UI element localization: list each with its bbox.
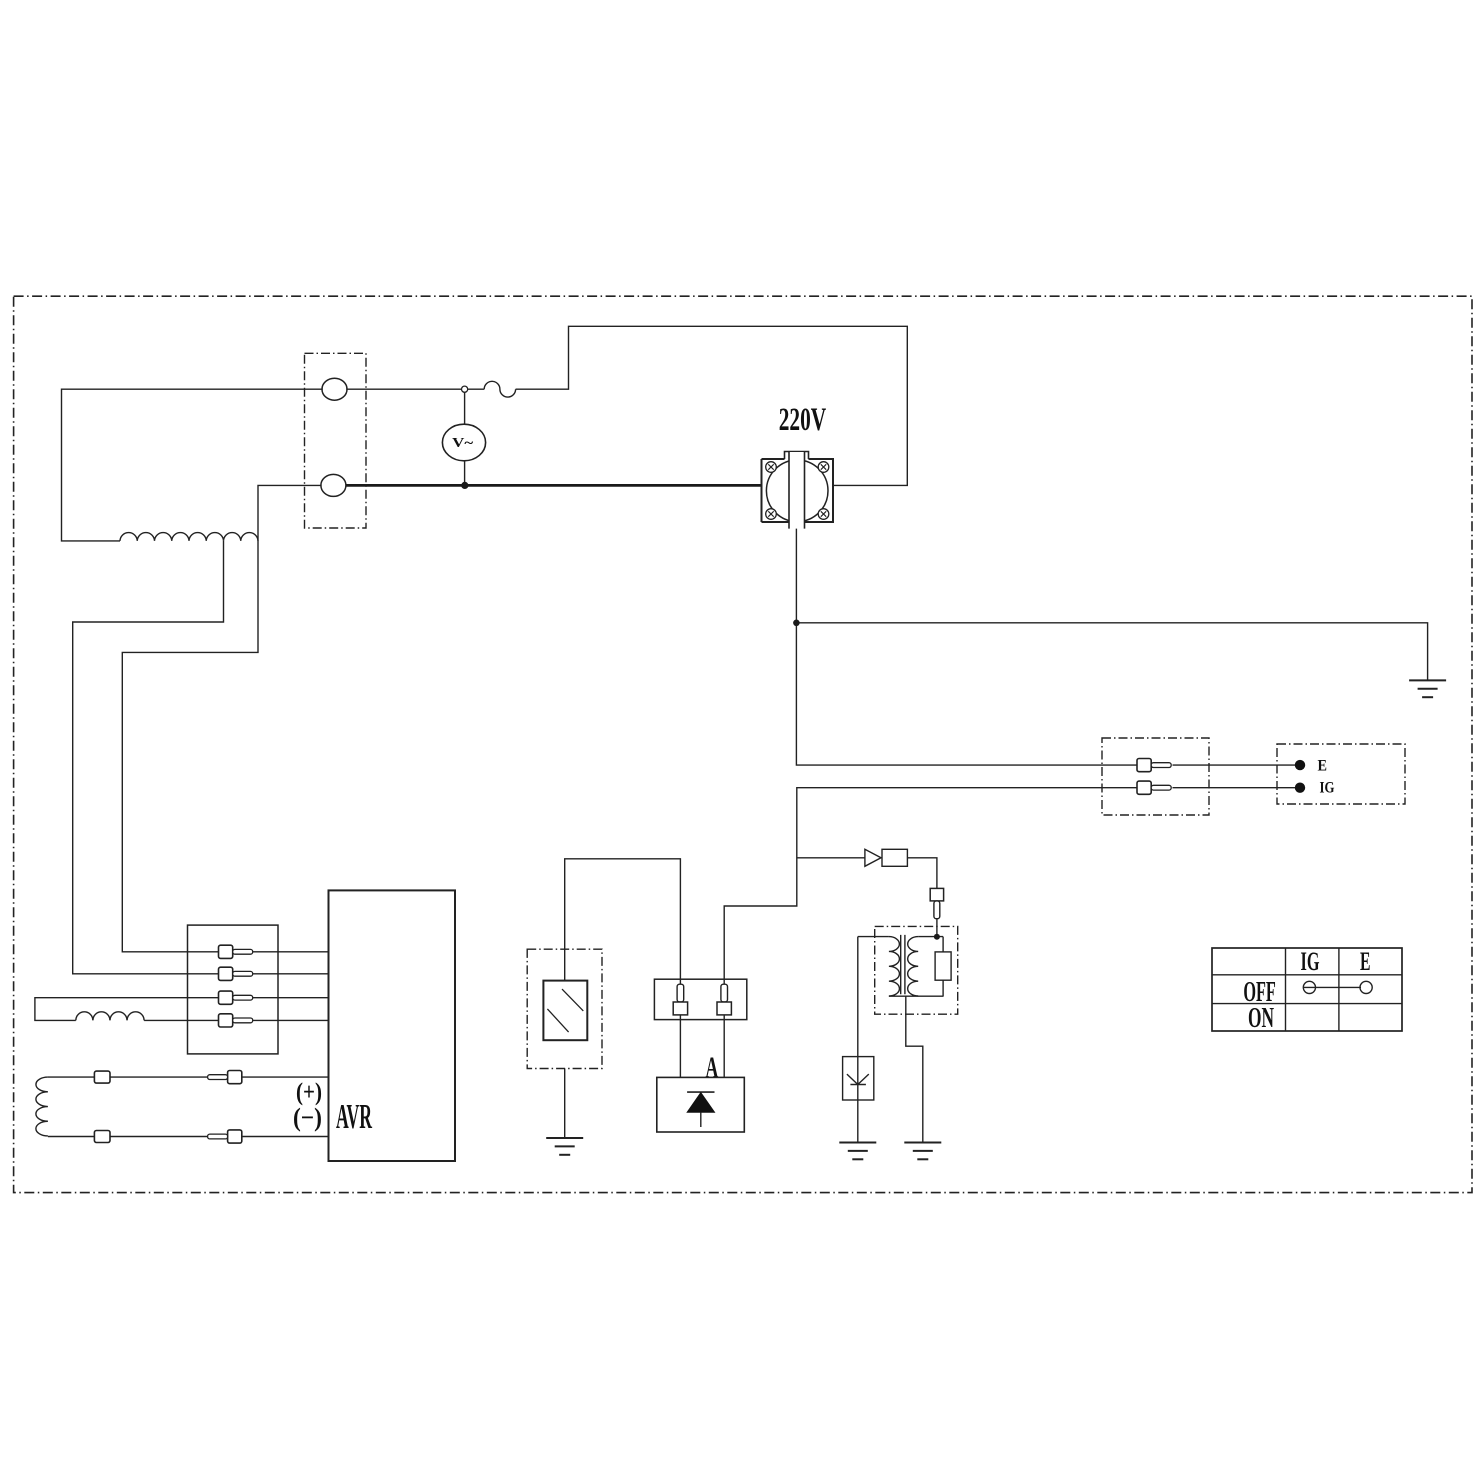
- svg-text:IG: IG: [1301, 947, 1320, 976]
- svg-text:V~: V~: [452, 436, 474, 451]
- svg-text:220V: 220V: [779, 402, 827, 438]
- svg-text:A: A: [705, 1050, 718, 1085]
- svg-text:ON: ON: [1248, 1002, 1274, 1034]
- svg-text:(+): (+): [296, 1079, 322, 1106]
- svg-text:AVR: AVR: [336, 1097, 372, 1136]
- svg-text:E: E: [1318, 758, 1328, 775]
- svg-text:(−): (−): [293, 1103, 322, 1132]
- svg-text:E: E: [1360, 947, 1371, 976]
- svg-text:IG: IG: [1320, 779, 1335, 796]
